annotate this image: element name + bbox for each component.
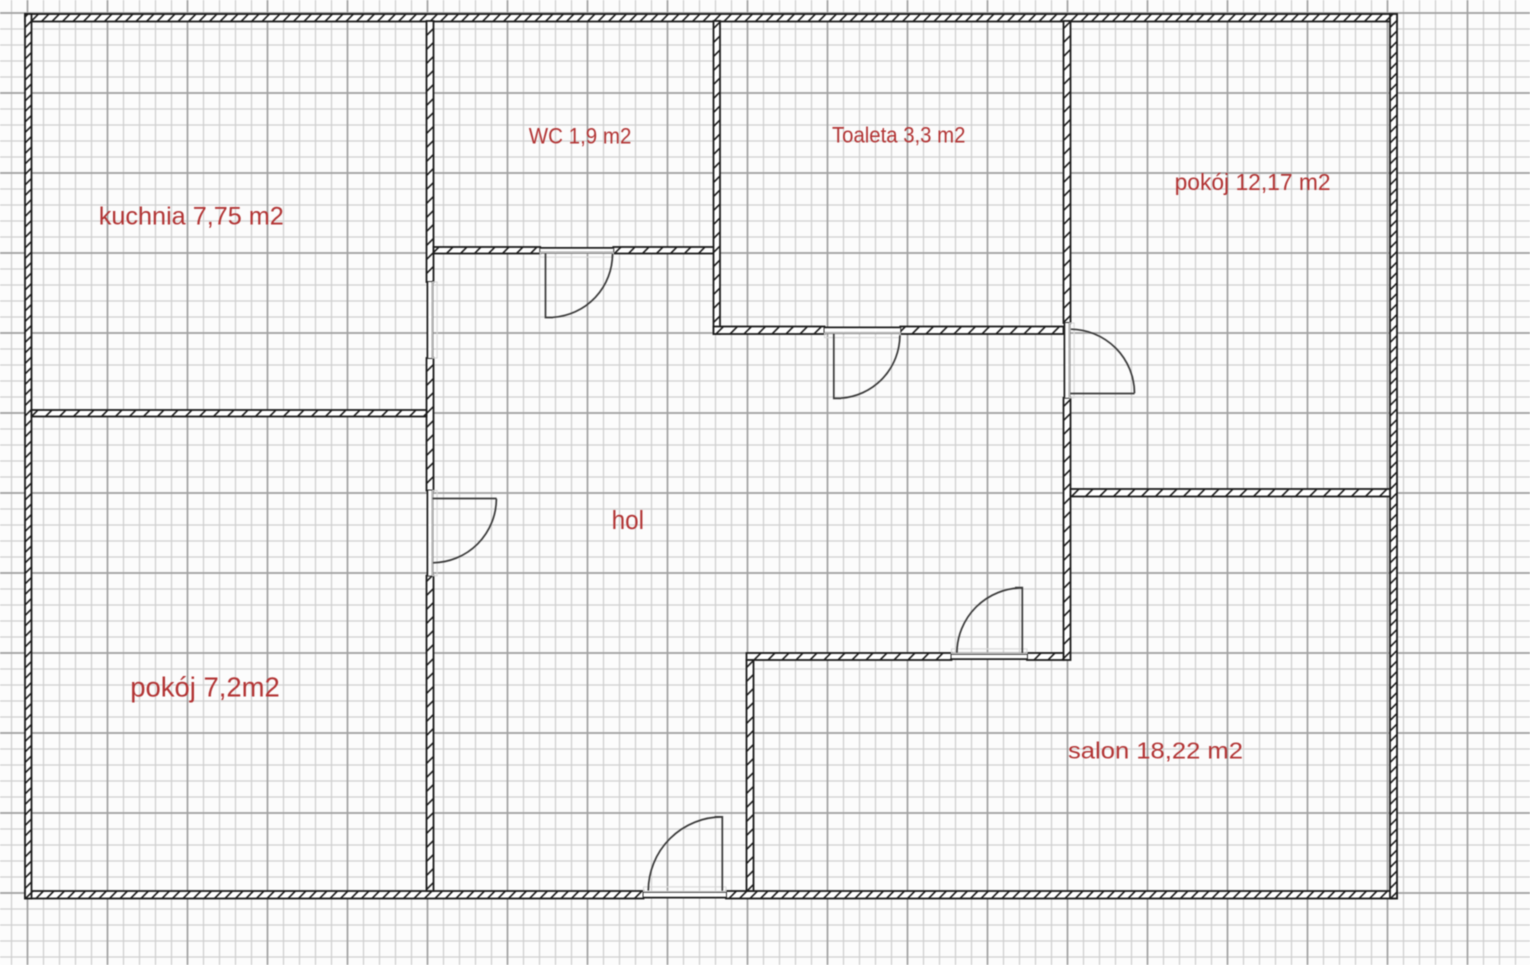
svg-text:WC 1,9 m2: WC 1,9 m2	[529, 123, 632, 148]
svg-text:Toaleta 3,3 m2: Toaleta 3,3 m2	[832, 122, 965, 147]
svg-text:pokój 12,17 m2: pokój 12,17 m2	[1175, 169, 1331, 195]
svg-text:hol: hol	[612, 507, 644, 535]
svg-text:pokój 7,2m2: pokój 7,2m2	[130, 672, 280, 703]
svg-text:kuchnia 7,75 m2: kuchnia 7,75 m2	[99, 203, 284, 231]
svg-text:salon 18,22 m2: salon 18,22 m2	[1068, 737, 1243, 763]
